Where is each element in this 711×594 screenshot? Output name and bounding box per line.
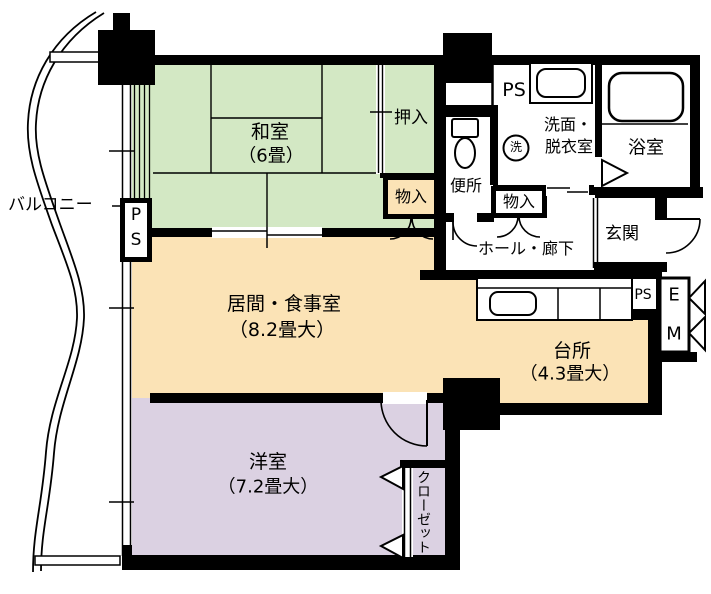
balcony-divider (35, 556, 120, 565)
wall-segment (150, 228, 212, 237)
storage-upper-label: 物入 (395, 188, 427, 206)
washroom-label-line2: 脱衣室 (545, 138, 593, 156)
oshiire-label: 押入 (394, 109, 428, 129)
oshiire-door-strip (376, 64, 385, 174)
bathtub-icon (609, 73, 683, 121)
wall-segment (440, 105, 496, 117)
toilet-tank-icon (452, 119, 478, 137)
kitchen-sink-icon (490, 292, 536, 315)
floorplan-drawing (0, 0, 711, 594)
ps-kitchen-label: PS (634, 287, 651, 303)
wall-segment (497, 403, 662, 415)
washer-symbol-label: 洗 (510, 141, 522, 155)
floorplan: バルコニー 和室 （6畳） 押入 物入 便所 PS 洗面・ 脱衣室 洗 浴室 物… (0, 0, 711, 594)
wall-column (443, 33, 492, 83)
bath-folding-door (602, 160, 627, 186)
wall-segment (490, 55, 700, 65)
wall-segment (595, 187, 703, 198)
ps-top-label: PS (502, 80, 526, 102)
storage-door-arc (519, 216, 540, 237)
washroom-label-line1: 洗面・ (544, 116, 592, 134)
wall-segment (595, 65, 602, 160)
ps-left-letter-p: P (131, 206, 141, 226)
elevator-door-mark (689, 281, 705, 314)
western-room-name: 洋室 (249, 452, 287, 474)
washitsu-size: （6畳） (238, 147, 303, 168)
ps-left-letter-s: S (131, 231, 142, 251)
hall-label: ホール・廊下 (478, 240, 574, 258)
toilet-label: 便所 (450, 177, 482, 195)
balcony-inner-edge (36, 13, 104, 571)
wall-segment (122, 545, 132, 570)
wall-segment (400, 460, 457, 468)
closet-label: クローゼット (415, 470, 431, 554)
kitchen-name: 台所 (553, 341, 591, 363)
elevator-letter-e: E (668, 286, 679, 307)
wall-segment (322, 228, 443, 237)
balcony-label: バルコニー (8, 196, 93, 216)
kitchen-size: （4.3畳大） (520, 365, 621, 386)
wall-segment (655, 195, 667, 220)
wall-segment (427, 393, 443, 403)
living-size: （8.2畳大） (229, 320, 335, 342)
wall-segment (440, 213, 454, 222)
wall-segment (122, 555, 460, 570)
bath-label: 浴室 (628, 139, 664, 160)
toilet-door-arc (453, 222, 477, 246)
wall-segment (150, 55, 445, 65)
toilet-bowl-icon (455, 138, 475, 168)
elevator-door-mark (689, 317, 705, 350)
storage-door-arc (497, 216, 518, 237)
entrance-door-arc (666, 219, 700, 253)
wall-column (98, 30, 155, 85)
wall-segment (445, 398, 460, 567)
balcony-outer-edge (28, 12, 96, 572)
wall-segment (434, 55, 446, 280)
washitsu-name: 和室 (251, 122, 289, 144)
western-room-size: （7.2畳大） (218, 478, 319, 499)
balcony-divider (50, 52, 99, 62)
wall-segment (113, 13, 130, 31)
washroom-door-gap (546, 184, 589, 196)
wall-segment (690, 55, 700, 197)
elevator-letter-m: M (666, 325, 682, 346)
wall-segment (150, 393, 383, 403)
storage-hall-label: 物入 (503, 193, 535, 211)
living-name: 居間・食事室 (227, 294, 341, 316)
genkan-label: 玄関 (605, 225, 639, 245)
vanity-sink-icon (537, 69, 585, 97)
western-door-gap (383, 392, 427, 404)
wall-segment (490, 105, 498, 185)
